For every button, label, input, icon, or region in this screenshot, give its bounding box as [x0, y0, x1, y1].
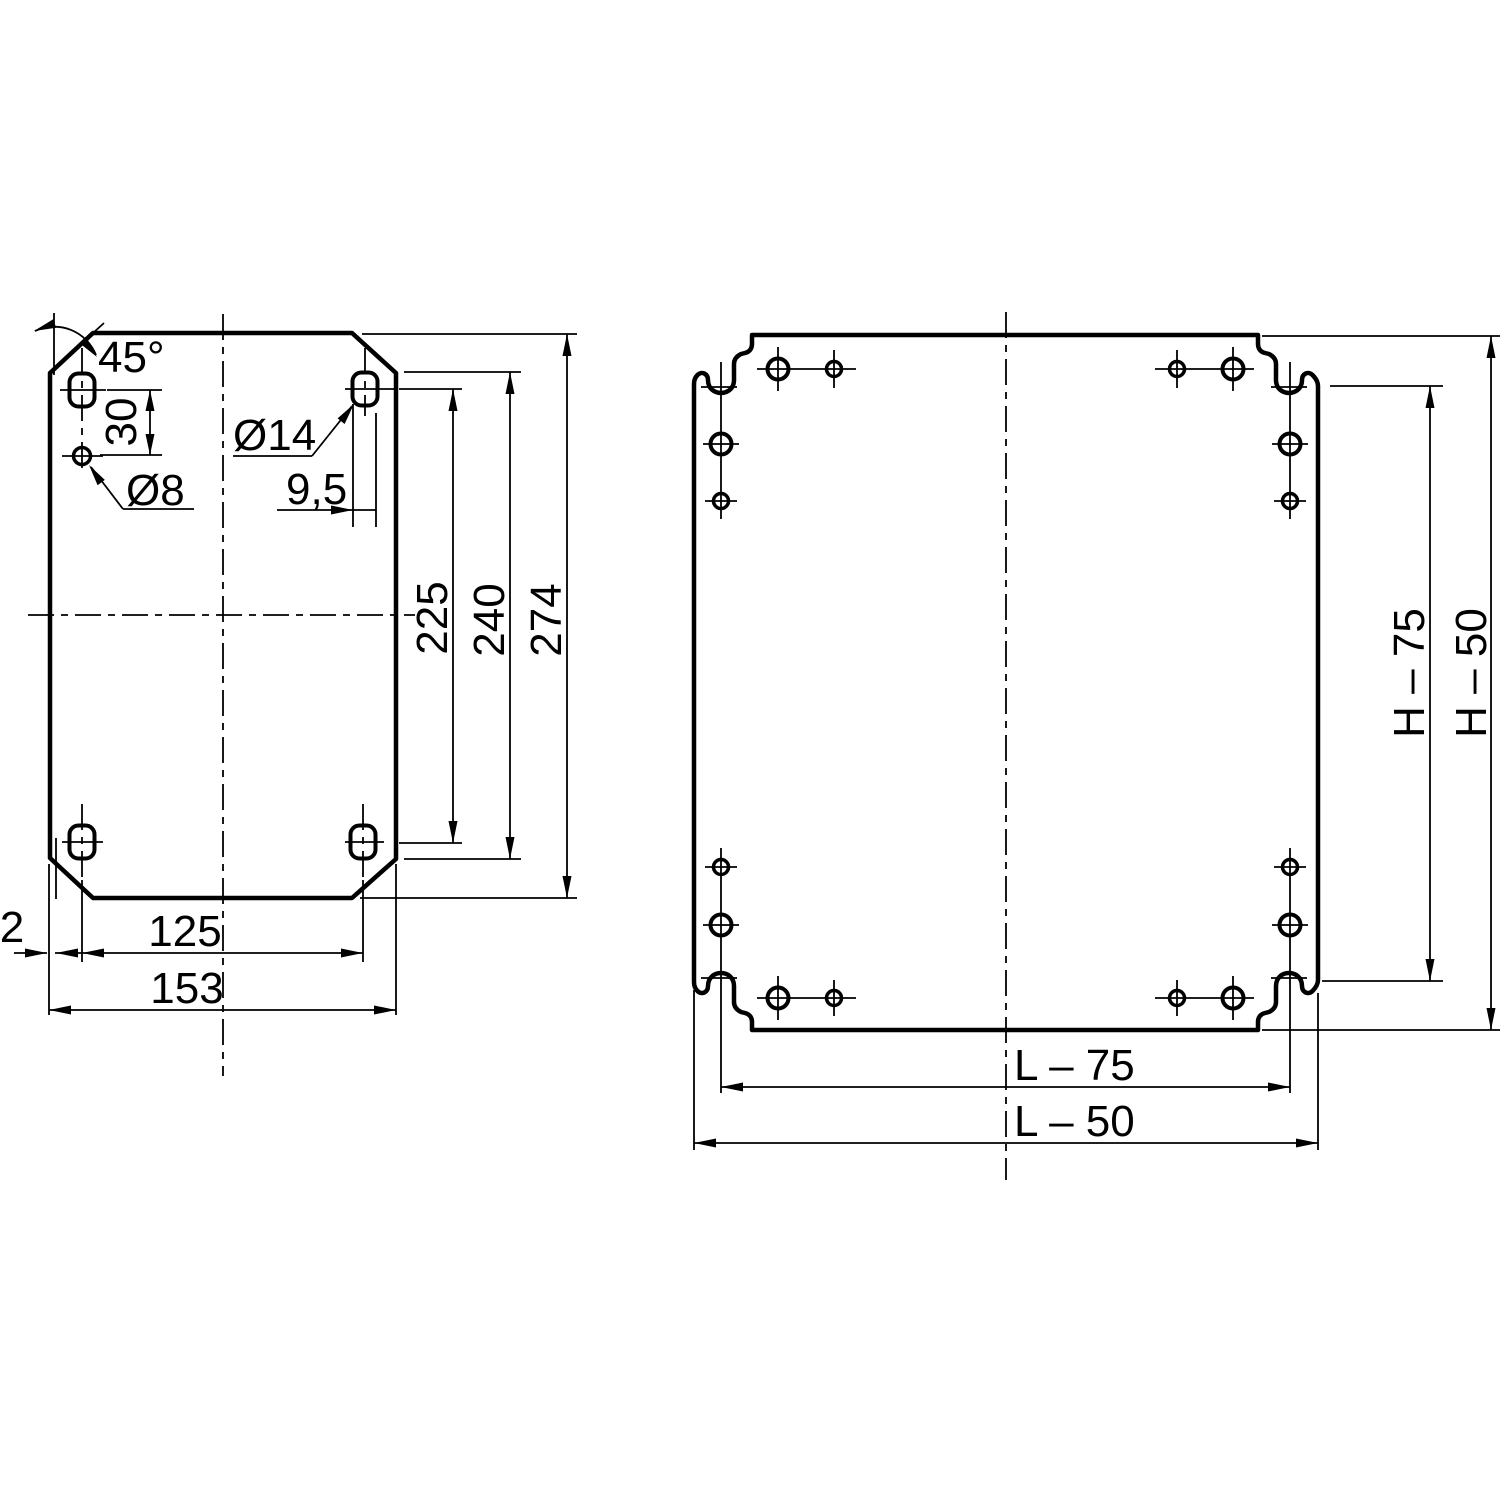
- dim-label-h50: H – 50: [1447, 608, 1496, 738]
- dim-label-chamfer-angle: 45°: [98, 333, 165, 382]
- right-view-arrowheads: [694, 336, 1496, 1148]
- dim-label-slot-diameter: Ø14: [233, 411, 316, 460]
- dim-label-l50: L – 50: [1014, 1097, 1135, 1146]
- right-view: H – 75 H – 50 L – 75 L – 50: [694, 312, 1500, 1180]
- dim-label-height-to-edge: 240: [465, 583, 514, 656]
- dim-label-slot-width: 9,5: [286, 465, 347, 514]
- dim-label-width-between-holes: 125: [148, 907, 221, 956]
- left-view-centerlines: [28, 314, 415, 1076]
- drawing-canvas: 45° 30 Ø14 Ø8 9,5 225 240 274 125 153 2 …: [0, 0, 1500, 1500]
- technical-drawing: 45° 30 Ø14 Ø8 9,5 225 240 274 125 153 2 …: [0, 0, 1500, 1500]
- dim-label-hole-diameter: Ø8: [126, 466, 185, 515]
- dim-label-height-to-holes: 225: [408, 581, 457, 654]
- dim-label-edge-offset: 2: [0, 903, 24, 952]
- dim-label-hole-spacing: 30: [97, 398, 146, 447]
- dim-label-h75: H – 75: [1385, 608, 1434, 738]
- dim-label-l75: L – 75: [1014, 1041, 1135, 1090]
- left-view: 45° 30 Ø14 Ø8 9,5 225 240 274 125 153 2: [0, 313, 577, 1076]
- dim-label-height-total: 274: [522, 583, 571, 656]
- dim-label-width-total: 153: [150, 964, 223, 1013]
